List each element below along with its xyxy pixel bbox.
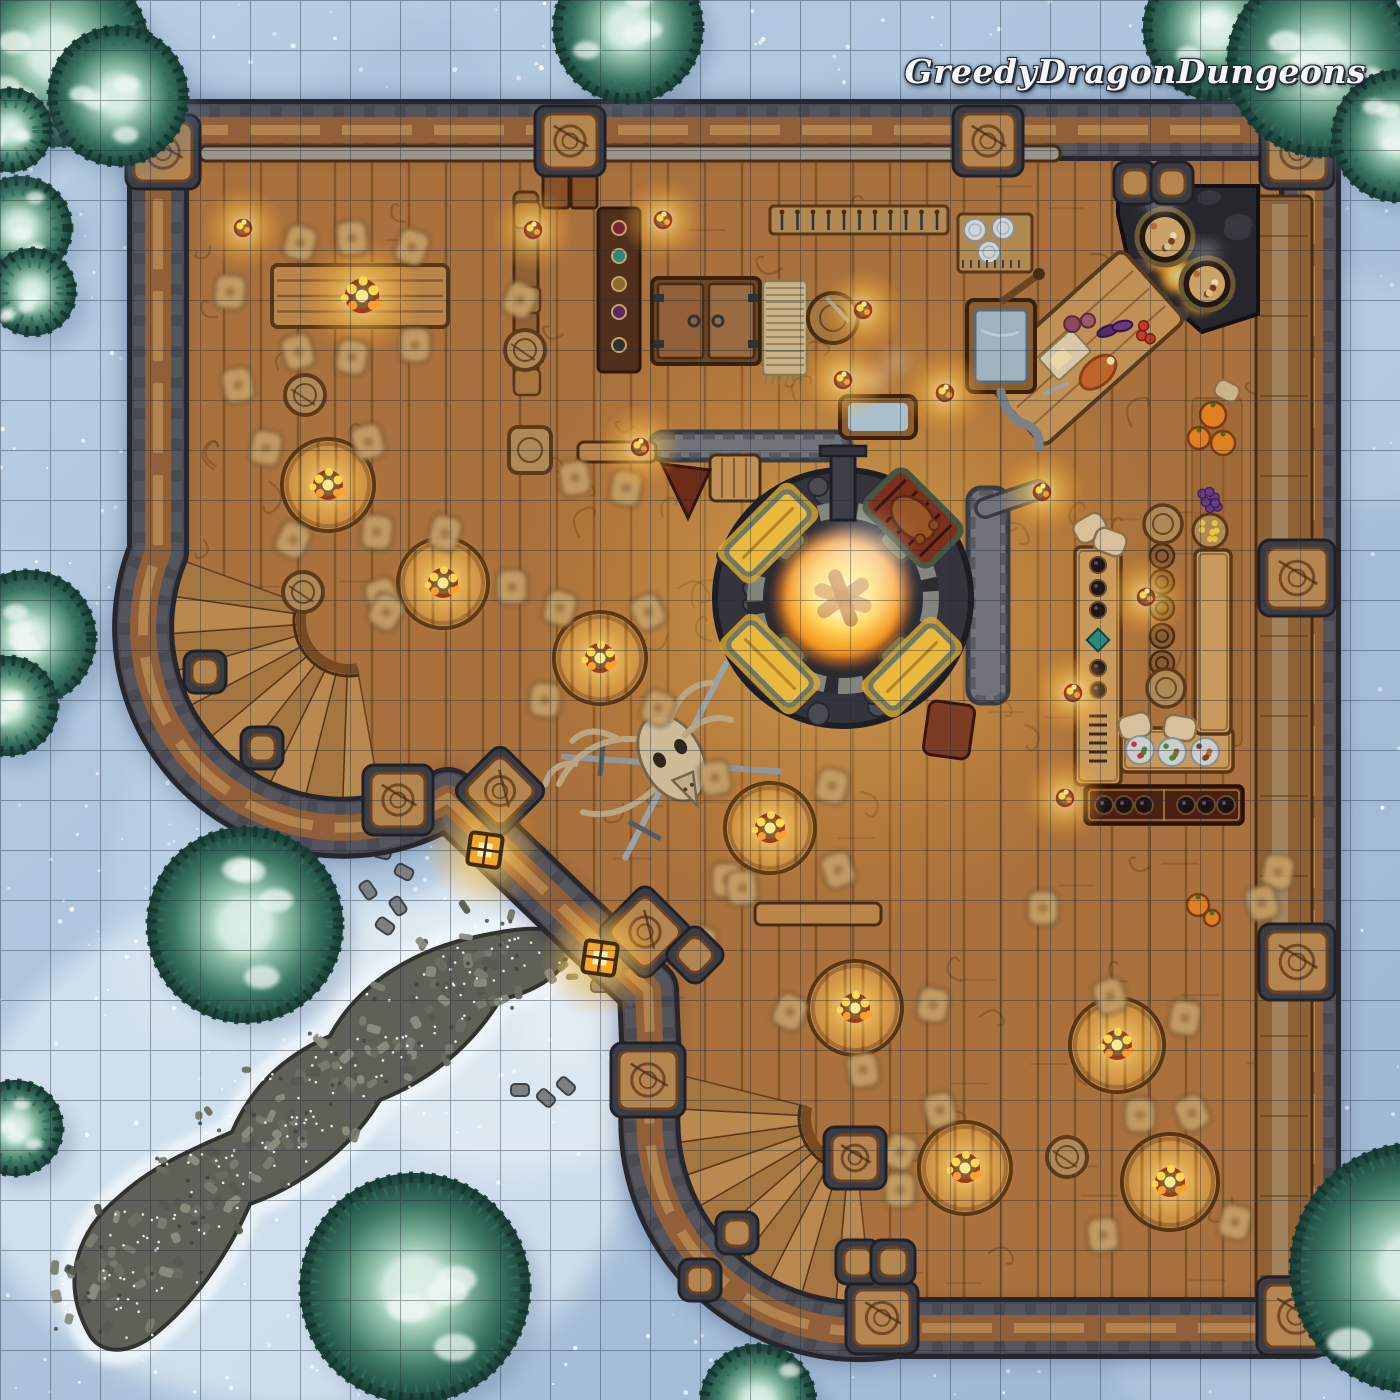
snowflake-dot	[842, 80, 846, 84]
snowflake-dot	[931, 16, 934, 19]
snowflake-dot	[35, 560, 38, 563]
candle-flame	[449, 574, 458, 583]
road-snow-dot	[530, 941, 533, 944]
snowflake-dot	[1346, 207, 1349, 210]
road-crack	[514, 967, 518, 971]
road-snow-dot	[469, 971, 472, 974]
road-crack	[496, 932, 500, 936]
candle-flame	[531, 221, 536, 226]
candle-flame	[844, 379, 850, 385]
pumpkin-stem	[1196, 895, 1201, 900]
road-cobble	[357, 1075, 365, 1084]
road-snow-dot	[511, 957, 514, 960]
snowflake-dot	[97, 930, 99, 932]
candle-flame	[767, 811, 775, 819]
snowflake-dot	[443, 897, 446, 900]
road-snow-dot	[190, 1191, 193, 1194]
snowflake-dot	[69, 562, 71, 564]
snowflake-dot	[108, 586, 111, 589]
wall-candle	[201, 186, 285, 270]
snowflake-dot	[1378, 687, 1382, 691]
snowflake-dot	[121, 838, 123, 840]
road-crack	[206, 1176, 210, 1180]
road-crack	[293, 1129, 297, 1133]
snowflake-dot	[933, 1374, 936, 1377]
road-snow-dot	[303, 1122, 306, 1125]
road-snow-dot	[157, 1241, 160, 1244]
road-snow-dot	[392, 1051, 395, 1054]
post-log	[844, 1248, 872, 1276]
road-cobble	[107, 1246, 116, 1258]
road-crack	[510, 1006, 514, 1010]
candle-flame	[611, 661, 618, 668]
road-snow-dot	[229, 1115, 232, 1118]
snowflake-dot	[113, 505, 117, 509]
snowflake-dot	[1380, 806, 1384, 810]
trapdoor-hinge	[748, 340, 758, 348]
road-snow-dot	[194, 1210, 197, 1213]
snowflake-dot	[104, 1015, 106, 1017]
road-crack	[186, 1178, 190, 1182]
candle-flame	[843, 1012, 851, 1020]
tree-snow-patch	[1327, 1328, 1372, 1358]
road-crack	[201, 1216, 205, 1220]
road-snow-dot	[366, 993, 369, 996]
snowflake-dot	[167, 842, 170, 845]
post-log	[1122, 170, 1148, 196]
post-log	[1267, 932, 1327, 992]
candle-flame	[1099, 1044, 1106, 1051]
road-cobble	[305, 1067, 321, 1077]
candle-flame	[664, 219, 670, 225]
road-snow-dot	[502, 970, 505, 973]
bottle-glint	[1222, 801, 1226, 805]
candle-flame	[1157, 1172, 1166, 1181]
candle-flame	[757, 818, 766, 827]
snowflake-dot	[940, 44, 942, 46]
tree-snow-patch	[16, 638, 40, 654]
snowflake-dot	[244, 1283, 247, 1286]
plate-food	[1171, 754, 1177, 760]
candle-flame	[976, 1171, 983, 1178]
road-crack	[86, 1291, 90, 1295]
snowflake-dot	[331, 1195, 335, 1199]
candle-flame	[864, 309, 870, 315]
road-snow-dot	[436, 941, 439, 944]
snowflake-dot	[84, 804, 88, 808]
snowflake-dot	[1209, 1390, 1212, 1393]
candle-flame	[334, 476, 343, 485]
road-cobble	[473, 979, 487, 988]
road-crack	[435, 982, 439, 986]
grapes	[1201, 498, 1210, 507]
road-snow-dot	[215, 1159, 218, 1162]
stool	[361, 514, 394, 550]
road-snow-dot	[218, 1165, 221, 1168]
candle-flame	[1074, 692, 1080, 698]
candle-flame	[368, 285, 378, 295]
stool-center	[1038, 903, 1048, 913]
wall-post	[1259, 540, 1335, 616]
candle-flame	[1123, 1036, 1132, 1045]
snowflake-dot	[225, 1376, 229, 1380]
road-crack	[483, 967, 487, 971]
road-snow-dot	[159, 1163, 162, 1166]
snowflake-dot	[1390, 282, 1395, 287]
road-snow-dot	[508, 939, 511, 942]
hearth-cobble	[1224, 221, 1252, 240]
wall-post	[953, 106, 1023, 176]
candle-flame	[861, 999, 870, 1008]
road-snow-dot	[242, 1183, 245, 1186]
snowflake-dot	[272, 32, 276, 36]
candle-flame	[1181, 1185, 1188, 1192]
road-snow-dot	[198, 1229, 201, 1232]
snowflake-dot	[573, 1346, 578, 1351]
wine-bottle-top	[1090, 602, 1106, 618]
road-cobble	[491, 960, 499, 970]
road-snow-dot	[483, 912, 486, 915]
road-snow-dot	[453, 984, 456, 987]
road-crack	[485, 919, 489, 923]
log-stump	[1047, 1137, 1087, 1177]
road-snow-dot	[273, 1151, 276, 1154]
cellar-trapdoor	[652, 278, 760, 364]
road-snow-dot	[166, 1163, 169, 1166]
tree-snow-patch	[26, 191, 45, 203]
wall-candle	[903, 351, 987, 435]
snowflake-dot	[557, 1106, 559, 1108]
road-snow-dot	[296, 1116, 299, 1119]
snowflake-dot	[125, 955, 129, 959]
snowflake-dot	[673, 1314, 675, 1316]
road-snow-dot	[332, 1092, 335, 1095]
trapdoor-panel	[658, 284, 703, 358]
road-snow-dot	[396, 1037, 399, 1040]
grapes	[1211, 499, 1220, 508]
snowflake-dot	[543, 2, 547, 6]
road-snow-dot	[459, 994, 462, 997]
road-crack	[308, 1032, 312, 1036]
bowl-food	[1199, 527, 1205, 533]
candle-flame	[430, 573, 439, 582]
candle-flame	[852, 991, 860, 999]
road-snow-dot	[295, 1123, 298, 1126]
rack-wine-bottle	[1217, 796, 1235, 814]
tree-snow-patch	[1290, 54, 1324, 77]
candle-flame	[866, 1011, 873, 1018]
bottle-shine	[1094, 584, 1098, 588]
snowflake-dot	[46, 467, 48, 469]
log-stump	[283, 572, 323, 612]
tree-snow-patch	[13, 228, 32, 240]
road-snow-dot	[205, 1132, 208, 1135]
road-snow-dot	[474, 925, 477, 928]
snowflake-dot	[7, 887, 10, 890]
post-log	[1159, 170, 1185, 196]
candle-flame	[315, 475, 324, 484]
candle-flame	[323, 480, 334, 491]
road-snow-dot	[161, 1287, 164, 1290]
candle-flame	[641, 446, 647, 452]
road-snow-dot	[102, 1269, 105, 1272]
road-snow-dot	[286, 1135, 289, 1138]
road-snow-dot	[212, 1136, 215, 1139]
road-crack	[466, 961, 470, 965]
candle-flame	[587, 648, 596, 657]
snowflake-dot	[54, 1041, 59, 1046]
road-snow-dot	[426, 946, 429, 949]
candle-flame	[310, 484, 317, 491]
road-snow-dot	[69, 1310, 72, 1313]
table-candles	[803, 956, 907, 1060]
plate	[978, 241, 1000, 263]
wine-bottle-top	[1090, 557, 1106, 573]
stew-chunk	[1150, 223, 1157, 230]
snowflake-dot	[512, 1069, 516, 1073]
road-cobble	[242, 1067, 252, 1073]
stool-center	[410, 340, 420, 350]
snowflake-dot	[81, 439, 85, 443]
candle-flame	[841, 371, 846, 376]
road-snow-dot	[297, 1097, 300, 1100]
road-snow-dot	[454, 1040, 457, 1043]
candle-flame	[1112, 1040, 1123, 1051]
snowflake-dot	[452, 67, 457, 72]
plate-food	[1131, 741, 1137, 747]
road-snow-dot	[115, 1308, 118, 1311]
tree-snow-patch	[244, 965, 279, 989]
snowflake-dot	[357, 1393, 360, 1396]
stew-chunk	[1193, 271, 1200, 278]
tree-snow-patch	[8, 1131, 25, 1143]
snowflake-dot	[534, 62, 538, 66]
log-stool	[1144, 505, 1182, 543]
road-snow-dot	[271, 1073, 274, 1076]
post-log	[832, 1135, 878, 1181]
snowflake-dot	[123, 246, 127, 250]
road-crack	[54, 1327, 58, 1331]
road-snow-dot	[201, 1153, 204, 1156]
road-snow-dot	[305, 1118, 308, 1121]
tree-snow-patch	[113, 126, 138, 143]
candle-flame	[1040, 483, 1045, 488]
candle-flame	[244, 227, 250, 233]
candle-flame	[325, 468, 333, 476]
snowflake-dot	[561, 1111, 563, 1113]
candle-flame	[438, 578, 449, 589]
snowflake-dot	[646, 1334, 651, 1339]
road-snow-dot	[321, 1129, 324, 1132]
road-snow-dot	[442, 955, 445, 958]
road-snow-dot	[356, 1038, 359, 1041]
snowflake-dot	[169, 823, 171, 825]
road-snow-dot	[133, 1285, 136, 1288]
snowflake-dot	[423, 1112, 426, 1115]
shelf-bottle	[612, 249, 626, 263]
candle-flame	[359, 276, 368, 285]
road-snow-dot	[103, 1277, 106, 1280]
road-snow-dot	[315, 1056, 318, 1059]
road-snow-dot	[423, 973, 426, 976]
battle-map-stage: GreedyDragonDungeons	[0, 0, 1400, 1400]
candle-flame	[1158, 1186, 1166, 1194]
snowflake-dot	[1129, 24, 1132, 27]
candle-flame	[346, 284, 356, 294]
road-crack	[330, 1083, 334, 1087]
road-snow-dot	[196, 1281, 199, 1284]
road-snow-dot	[467, 1044, 470, 1047]
road-snow-dot	[298, 1146, 301, 1149]
post-log	[879, 1248, 907, 1276]
post-log	[724, 1220, 750, 1246]
wine-bottle-top	[1090, 580, 1106, 596]
snowflake-dot	[69, 907, 74, 912]
snowflake-dot	[954, 1393, 956, 1395]
snowflake-dot	[18, 804, 21, 807]
snowflake-dot	[267, 1343, 271, 1347]
tree-snow-patch	[1, 307, 17, 318]
knife-handle	[873, 210, 878, 215]
wall-post	[241, 727, 283, 769]
tree-snow-patch	[222, 857, 257, 881]
tree-snow-patch	[22, 294, 38, 305]
snowflake-dot	[413, 887, 418, 892]
plate-food	[1204, 754, 1210, 760]
stool	[334, 338, 369, 377]
road-snow-dot	[287, 1183, 290, 1186]
snowflake-dot	[693, 1340, 697, 1344]
road-snow-dot	[456, 947, 459, 950]
snowflake-dot	[1037, 1370, 1041, 1374]
road-snow-dot	[433, 1032, 436, 1035]
plate	[992, 217, 1014, 239]
snowflake-dot	[989, 33, 992, 36]
candle-flame	[1071, 684, 1076, 689]
rack-wine-bottle	[1197, 796, 1215, 814]
wall-candle	[1104, 555, 1188, 639]
road-snow-dot	[187, 1161, 190, 1164]
snowflake-dot	[539, 65, 544, 70]
road-snow-dot	[445, 986, 448, 989]
road-crack	[67, 1266, 71, 1270]
stool	[1087, 1217, 1120, 1253]
wall-post	[716, 1212, 758, 1254]
road-crack	[118, 1293, 122, 1297]
road-snow-dot	[122, 1244, 125, 1247]
snowflake-dot	[310, 1364, 314, 1368]
road-snow-dot	[382, 1059, 385, 1062]
stew-chunk	[1168, 238, 1175, 245]
candle-flame	[1176, 1173, 1185, 1182]
road-snow-dot	[236, 1207, 239, 1210]
road-snow-dot	[311, 1064, 314, 1067]
snowflake-dot	[516, 76, 521, 81]
log-stool	[1147, 669, 1185, 707]
snowflake-dot	[134, 1121, 139, 1126]
road-snow-dot	[513, 938, 516, 941]
road-snow-dot	[203, 1232, 206, 1235]
stool	[400, 328, 430, 362]
round-table	[913, 1116, 1017, 1220]
plate-food	[1163, 743, 1169, 749]
candle-flame	[776, 819, 785, 828]
wall-post	[535, 106, 605, 176]
road-snow-dot	[119, 1277, 122, 1280]
road-snow-dot	[330, 1125, 333, 1128]
snowflake-dot	[238, 3, 240, 5]
stool	[1167, 999, 1202, 1038]
bowl-food	[1212, 520, 1218, 526]
snowflake-dot	[110, 351, 114, 355]
road-snow-dot	[506, 945, 509, 948]
candle-flame	[1114, 1028, 1122, 1036]
snowflake-dot	[456, 1131, 459, 1134]
road-snow-dot	[408, 1086, 411, 1089]
road-snow-dot	[454, 961, 457, 964]
road-snow-dot	[310, 1110, 313, 1113]
snowflake-dot	[275, 1218, 279, 1222]
road-snow-dot	[261, 1142, 264, 1145]
trapdoor-hinge	[654, 340, 664, 348]
road-snow-dot	[380, 1074, 383, 1077]
snowflake-dot	[1006, 1369, 1011, 1374]
bowl-food	[1212, 536, 1218, 542]
road-snow-dot	[166, 1155, 169, 1158]
post-log	[543, 114, 597, 168]
stool	[1028, 891, 1058, 925]
post-log	[854, 1290, 910, 1346]
snowflake-dot	[172, 1006, 176, 1010]
road-snow-dot	[402, 1036, 405, 1039]
road-cobble	[514, 985, 522, 999]
snowflake-dot	[173, 840, 176, 843]
road-crack	[305, 1111, 309, 1115]
road-crack	[467, 1017, 471, 1021]
dish-counter	[958, 214, 1032, 272]
vestibule-wall-block	[514, 369, 540, 395]
tree-snow-patch	[779, 1364, 800, 1378]
candle-flame	[341, 294, 349, 302]
food-plate	[1158, 738, 1186, 766]
road-snow-dot	[173, 1217, 176, 1220]
snowflake-dot	[845, 45, 850, 50]
road-crack	[189, 1194, 193, 1198]
candle-flame	[971, 1159, 980, 1168]
snowflake-dot	[852, 1376, 854, 1378]
snowflake-dot	[576, 1151, 581, 1156]
bowl-food	[1209, 530, 1215, 536]
road-cobble	[50, 1260, 59, 1275]
knife-handle	[842, 210, 847, 215]
road-snow-dot	[136, 1241, 139, 1244]
snowflake-dot	[881, 18, 885, 22]
tree-snow-patch	[25, 1138, 42, 1150]
candle-flame	[837, 1007, 844, 1014]
road-snow-dot	[462, 951, 465, 954]
shelf-bottle	[612, 338, 626, 352]
snowflake-dot	[145, 887, 147, 889]
wall-post	[1151, 162, 1193, 204]
snowflake-dot	[1385, 209, 1389, 213]
snowflake-dot	[107, 989, 109, 991]
plate	[964, 219, 986, 241]
pot-steam	[1187, 244, 1219, 260]
snowflake-dot	[281, 1037, 285, 1041]
table-candles	[913, 1116, 1017, 1220]
stool	[557, 459, 592, 498]
candle-flame	[952, 1158, 961, 1167]
